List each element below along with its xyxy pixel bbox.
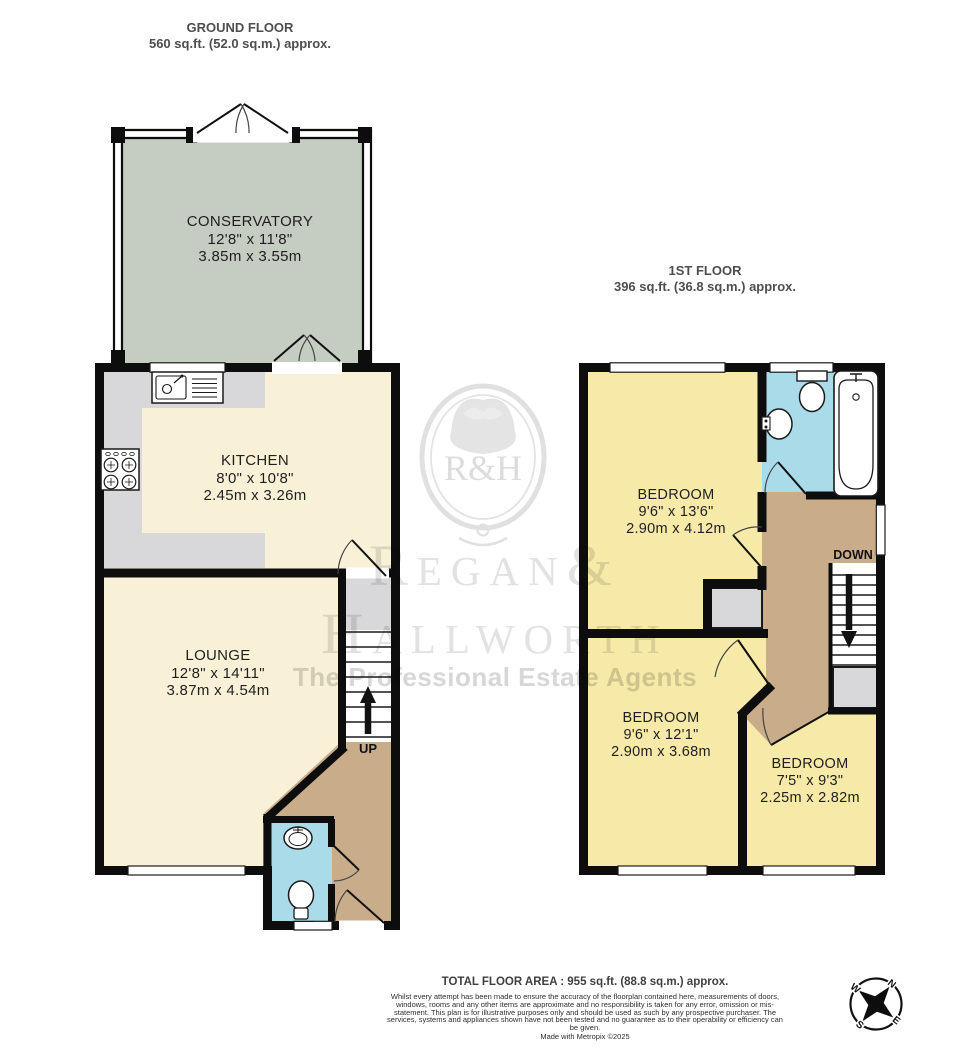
stairs-top-landing: [346, 578, 391, 630]
room-name: KITCHEN: [203, 452, 306, 470]
first-floor-area: 396 sq.ft. (36.8 sq.m.) approx.: [614, 279, 796, 295]
kitchen-window: [150, 363, 225, 372]
ground-floor-area: 560 sq.ft. (52.0 sq.m.) approx.: [149, 36, 331, 52]
room-dims-imperial: 9'6" x 12'1": [611, 727, 711, 744]
room-dims-metric: 2.90m x 3.68m: [611, 744, 711, 761]
stairs-down-label: DOWN: [833, 548, 873, 562]
room-dims-imperial: 12'8" x 14'11": [166, 665, 269, 683]
credit-text: Made with Metropix ©2025: [540, 1032, 629, 1041]
bathroom-bath: [834, 371, 878, 496]
bedroom2-label: BEDROOM 9'6" x 12'1" 2.90m x 3.68m: [611, 710, 711, 761]
room-dims-metric: 2.90m x 4.12m: [626, 521, 726, 538]
understairs-cupboard: [833, 667, 877, 708]
kitchen-label: KITCHEN 8'0" x 10'8" 2.45m x 3.26m: [203, 452, 306, 505]
total-floor-area: TOTAL FLOOR AREA : 955 sq.ft. (88.8 sq.m…: [442, 976, 729, 988]
first-floor-header: 1ST FLOOR 396 sq.ft. (36.8 sq.m.) approx…: [614, 263, 796, 295]
room-dims-imperial: 12'8" x 11'8": [187, 231, 313, 249]
room-name: BEDROOM: [611, 710, 711, 727]
floorplan-page: UP DOWN N E S W R&H Regan& Hallworth The…: [0, 0, 980, 1048]
conservatory-label: CONSERVATORY 12'8" x 11'8" 3.85m x 3.55m: [187, 213, 313, 266]
room-dims-imperial: 9'6" x 13'6": [626, 504, 726, 521]
bedroom1-window: [610, 363, 725, 372]
first-floor-title: 1ST FLOOR: [614, 263, 796, 279]
room-name: CONSERVATORY: [187, 213, 313, 231]
kitchen-hob: [101, 449, 139, 490]
bathroom-toilet: [797, 371, 827, 412]
landing-window: [876, 505, 885, 555]
room-dims-imperial: 7'5" x 9'3": [760, 773, 860, 790]
room-dims-metric: 3.85m x 3.55m: [187, 248, 313, 266]
room-dims-metric: 2.25m x 2.82m: [760, 790, 860, 807]
room-name: BEDROOM: [760, 756, 860, 773]
bedroom2-window: [618, 866, 707, 875]
bedroom3-window: [763, 866, 855, 875]
room-dims-metric: 3.87m x 4.54m: [166, 682, 269, 700]
bedroom3-label: BEDROOM 7'5" x 9'3" 2.25m x 2.82m: [760, 756, 860, 807]
ground-floor-header: GROUND FLOOR 560 sq.ft. (52.0 sq.m.) app…: [149, 20, 331, 52]
compass-icon: N E S W: [832, 961, 918, 1048]
bedroom1-label: BEDROOM 9'6" x 13'6" 2.90m x 4.12m: [626, 487, 726, 538]
room-name: LOUNGE: [166, 647, 269, 665]
lounge-label: LOUNGE 12'8" x 14'11" 3.87m x 4.54m: [166, 647, 269, 700]
lounge-window: [128, 866, 245, 875]
wc-sink: [284, 827, 312, 849]
room-dims-metric: 2.45m x 3.26m: [203, 487, 306, 505]
room-dims-imperial: 8'0" x 10'8": [203, 470, 306, 488]
bedroom1-cupboard: [711, 588, 762, 628]
kitchen-sink-unit: [152, 372, 223, 403]
ground-floor-title: GROUND FLOOR: [149, 20, 331, 36]
wc-window: [294, 921, 332, 930]
floorplan-drawing: UP DOWN N E S W: [0, 0, 980, 1048]
disclaimer-text: Whilst every attempt has been made to en…: [385, 993, 785, 1032]
room-name: BEDROOM: [626, 487, 726, 504]
ground-floor-fills: [99, 363, 396, 926]
stairs-up-label: UP: [359, 741, 377, 756]
